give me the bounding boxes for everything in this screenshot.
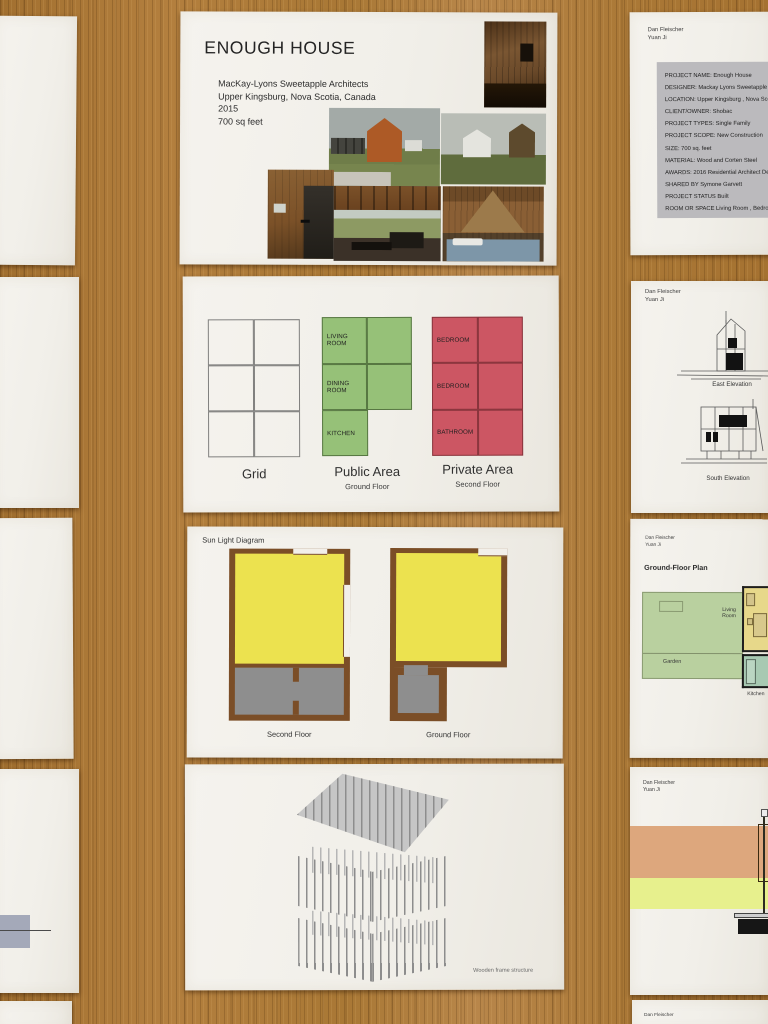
left-sheet-1 — [0, 16, 77, 266]
project-title: ENOUGH HOUSE — [204, 37, 355, 59]
left-sheet-3 — [0, 518, 74, 759]
room-label: BATHROOM — [437, 429, 473, 436]
room-label: DINING ROOM — [327, 380, 366, 394]
grid-cell — [208, 365, 254, 411]
gable-wall — [461, 190, 525, 232]
grid-cell — [208, 411, 254, 457]
shed-row — [331, 138, 365, 154]
room-cell-bedroom2: BEDROOM — [432, 363, 478, 409]
public-area-diagram-upper: LIVING ROOM DINING ROOM — [322, 317, 412, 410]
room-cell — [477, 363, 523, 409]
info-row: PROJECT NAME: Enough House — [665, 70, 768, 82]
orange-band — [630, 826, 768, 878]
top-window-gap — [293, 549, 327, 555]
author-1: Dan Fleischer — [644, 1012, 674, 1020]
author-1: Dan Fleischer — [648, 27, 684, 35]
shaded-area — [398, 675, 439, 713]
info-row: AWARDS: 2016 Residential Architect Desig… — [665, 166, 768, 178]
authors-block: Dan Fleischer Yuan Ji — [645, 289, 681, 304]
authors-block: Dan Fleischer Yuan Ji — [648, 27, 684, 42]
kitchen-area — [742, 654, 768, 688]
project-info-box: PROJECT NAME: Enough House DESIGNER: Mac… — [657, 62, 768, 218]
structure-caption: Wooden frame structure — [473, 968, 533, 974]
interior-wall-lower — [293, 701, 299, 715]
roof-frame-drawing — [297, 772, 449, 854]
living-room-area — [742, 586, 768, 652]
south-elevation-drawing — [631, 399, 768, 473]
pinboard-wall: ENOUGH HOUSE MacKay-Lyons Sweetapple Arc… — [0, 0, 768, 1024]
room-cell-dining: DINING ROOM — [322, 364, 367, 411]
window-landscape — [334, 210, 441, 238]
authors-block: Dan Fleischer Yuan Ji — [645, 536, 675, 549]
author-1: Dan Fleischer — [645, 536, 675, 543]
photo-two-houses — [441, 113, 546, 184]
annex-volume — [390, 667, 447, 721]
table-shape — [753, 613, 767, 637]
shaded-area — [235, 668, 344, 715]
room-label: LIVING ROOM — [327, 333, 366, 347]
room-label: BEDROOM — [437, 336, 470, 343]
garden-area: Garden — [642, 592, 743, 679]
info-row: SHARED BY Symone Garvett — [665, 179, 768, 191]
grid-cell — [254, 319, 300, 365]
room-cell — [367, 317, 412, 364]
info-row: DESIGNER: Mackay Lyons Sweetapple Archit… — [665, 82, 768, 94]
sunlit-area — [396, 553, 501, 661]
counter-shape — [746, 659, 756, 684]
south-elevation-caption: South Elevation — [693, 475, 763, 482]
garden-divider-line — [643, 653, 742, 654]
planter-outline — [659, 601, 683, 612]
table-shape — [352, 242, 392, 250]
pillows — [453, 238, 483, 245]
second-floor-plan — [229, 549, 350, 721]
author-1: Dan Fleischer — [643, 780, 675, 787]
info-row: PROJECT SCOPE: New Construction — [665, 130, 768, 142]
grid-cell — [254, 365, 300, 411]
dark-furniture — [390, 232, 424, 248]
title-sheet: ENOUGH HOUSE MacKay-Lyons Sweetapple Arc… — [180, 11, 558, 265]
room-cell-living: LIVING ROOM — [322, 317, 367, 364]
author-2: Yuan Ji — [645, 542, 675, 549]
info-row: MATERIAL: Wood and Corten Steel — [665, 154, 768, 166]
ground-floor-sun-plan — [390, 548, 507, 721]
left-sheet-5 — [0, 1001, 72, 1024]
sunlight-sheet: Sun Light Diagram Second Floor Ground Fl… — [187, 527, 564, 759]
author-2: Yuan Ji — [643, 787, 675, 794]
room-cell — [477, 317, 523, 363]
living-room-label: Living Room — [718, 607, 740, 619]
grid-caption: Grid — [208, 466, 300, 481]
room-label: BEDROOM — [437, 383, 470, 390]
private-area-diagram: BEDROOM BEDROOM BATHROOM — [432, 317, 523, 456]
interior-wall-upper — [293, 668, 299, 682]
author-2: Yuan Ji — [645, 297, 681, 305]
author-2: Yuan Ji — [648, 35, 684, 43]
room-cell-bedroom1: BEDROOM — [432, 317, 478, 363]
partial-diagram-line — [0, 930, 51, 931]
attic-floor — [484, 83, 546, 107]
ground-floor-caption: Ground Floor — [390, 730, 507, 739]
concrete-terrace — [329, 172, 391, 186]
small-window — [274, 204, 286, 213]
ground-plan-title: Ground-Floor Plan — [644, 563, 708, 572]
grid-diagram — [208, 319, 300, 457]
public-area-subcaption: Ground Floor — [322, 482, 412, 491]
zoning-sheet: LIVING ROOM DINING ROOM KITCHEN BEDROOM … — [183, 276, 560, 513]
kitchen-label: Kitchen — [742, 691, 768, 697]
private-area-subcaption: Second Floor — [432, 480, 523, 489]
mast-cap — [761, 809, 768, 817]
garden-label: Garden — [663, 659, 681, 665]
info-row: PROJECT TYPES: Single Family — [665, 118, 768, 130]
black-base-shape — [738, 919, 768, 934]
room-cell — [367, 363, 412, 410]
door-gap — [404, 665, 428, 675]
sunlight-title: Sun Light Diagram — [202, 536, 264, 545]
left-sheet-2 — [0, 277, 79, 508]
room-cell-kitchen: KITCHEN — [322, 410, 368, 456]
public-area-caption: Public Area — [322, 464, 412, 479]
photo-bedroom — [443, 186, 544, 261]
location-line: Upper Kingsburg, Nova Scotia, Canada — [218, 90, 376, 103]
sofa-shape — [746, 593, 755, 606]
photo-door-interior — [268, 170, 334, 259]
sunlit-area — [235, 554, 344, 664]
east-elevation-caption: East Elevation — [702, 381, 762, 388]
platform-shape — [734, 913, 768, 918]
elevations-sheet: Dan Fleischer Yuan Ji East Elevation — [631, 281, 768, 513]
architect-line: MacKay-Lyons Sweetapple Architects — [218, 77, 376, 90]
orange-house-shape — [367, 118, 402, 162]
yellow-band — [630, 878, 768, 909]
private-area-caption: Private Area — [432, 462, 523, 477]
lower-wall-frame-drawing — [298, 916, 446, 984]
grid-cell — [208, 319, 254, 365]
section-sheet: Dan Fleischer Yuan Ji — [630, 767, 768, 995]
left-sheet-4 — [0, 769, 79, 993]
mast-line — [763, 813, 765, 913]
room-label: KITCHEN — [327, 430, 355, 437]
info-row: CLIENT/OWNER: Shobac — [665, 106, 768, 118]
ground-plan-sheet: Dan Fleischer Yuan Ji Ground-Floor Plan … — [630, 519, 768, 758]
wood-gable-house — [509, 123, 535, 157]
public-area-diagram-kitchen: KITCHEN — [322, 410, 368, 456]
east-elevation-drawing — [631, 309, 768, 383]
grid-cell — [254, 411, 300, 457]
info-row: SIZE: 700 sq. feet — [665, 142, 768, 154]
chair-shape — [747, 618, 753, 625]
right-sheet-5: Dan Fleischer — [632, 1000, 768, 1024]
door-handle — [301, 220, 310, 223]
white-house-far — [405, 140, 422, 151]
structure-sheet: Wooden frame structure — [185, 764, 564, 991]
author-1: Dan Fleischer — [645, 289, 681, 297]
second-floor-caption: Second Floor — [229, 730, 350, 739]
corner-notch — [478, 548, 507, 556]
partial-diagram-shape — [0, 915, 30, 948]
roof-rafters — [297, 772, 449, 854]
room-cell — [478, 409, 524, 455]
authors-block: Dan Fleischer Yuan Ji — [643, 780, 675, 794]
info-row: ROOM OR SPACE Living Room , Bedroom — [665, 203, 768, 215]
info-row: LOCATION: Upper Kingsburg , Nova Scotia … — [665, 94, 768, 106]
photo-living-room-view — [334, 186, 441, 261]
white-gable-house — [463, 129, 491, 157]
info-row: PROJECT STATUS Built — [665, 191, 768, 203]
info-sheet: Dan Fleischer Yuan Ji PROJECT NAME: Enou… — [630, 12, 768, 256]
right-window-gap — [343, 585, 350, 657]
main-volume — [390, 548, 507, 667]
photo-orange-house — [329, 108, 440, 186]
ground-plan-drawing: Garden Living Room Kitchen — [630, 579, 768, 704]
wood-ceiling — [334, 186, 441, 210]
photo-attic-interior — [484, 21, 546, 107]
attic-window — [520, 44, 533, 62]
room-cell-bathroom: BATHROOM — [432, 409, 478, 455]
